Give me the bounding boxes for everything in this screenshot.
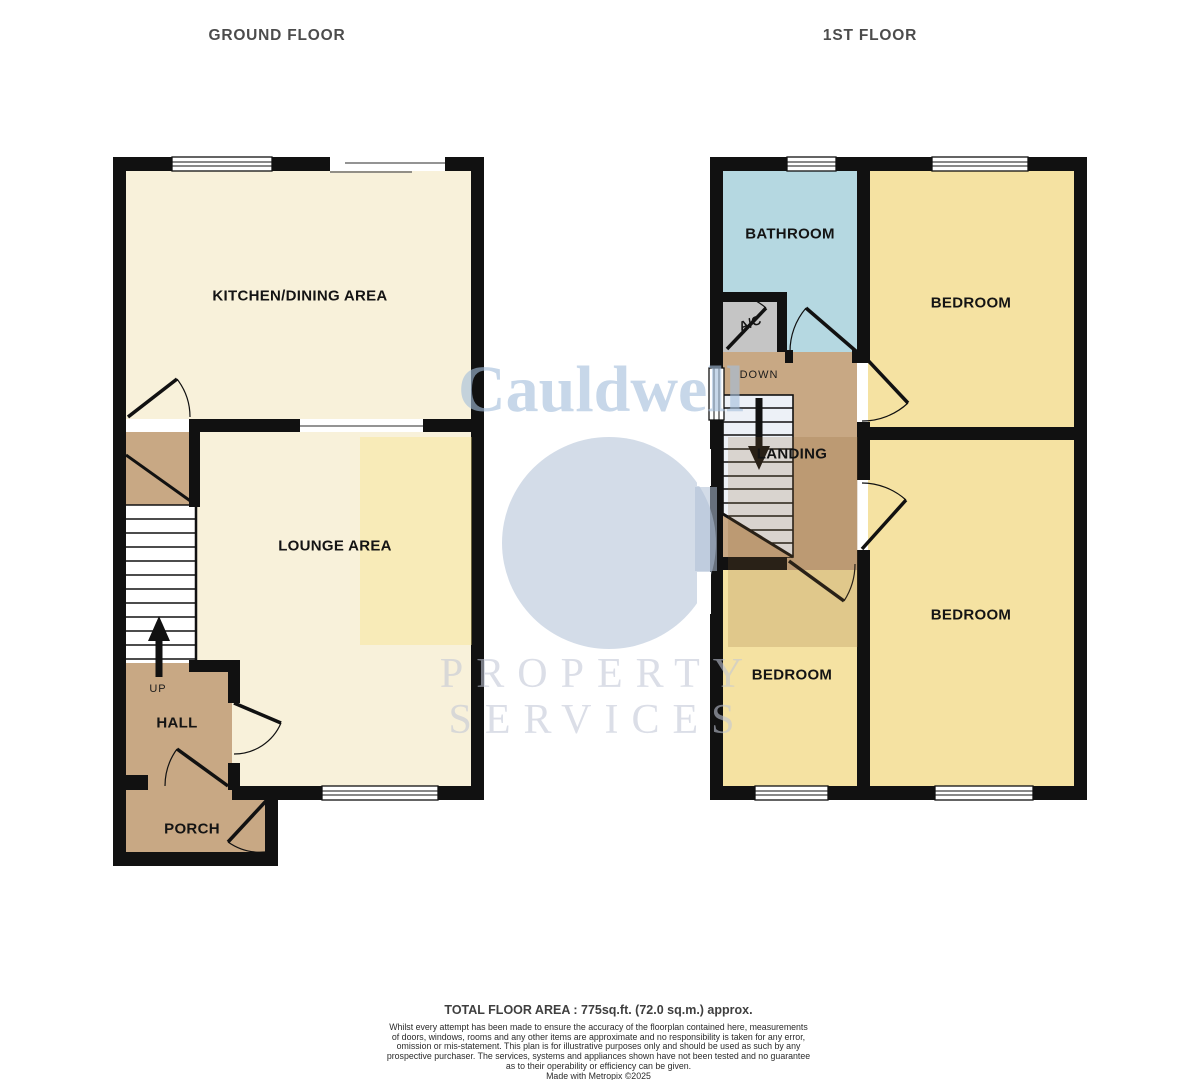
- floorplan-drawing: [0, 0, 1197, 1080]
- lounge-label: LOUNGE AREA: [278, 538, 392, 555]
- floorplan-page: Cauldwell PROPERTY SERVICES GROUND FLOOR…: [0, 0, 1197, 1080]
- total-floor-area: TOTAL FLOOR AREA : 775sq.ft. (72.0 sq.m.…: [0, 1003, 1197, 1017]
- bedroom-bottom-right-label: BEDROOM: [931, 607, 1011, 624]
- lounge-room-area: [196, 432, 471, 787]
- hall-label: HALL: [156, 715, 197, 732]
- up-label: UP: [149, 683, 166, 695]
- footer: TOTAL FLOOR AREA : 775sq.ft. (72.0 sq.m.…: [0, 1003, 1197, 1080]
- ground-floor-plan: [113, 157, 484, 866]
- ground-floor-title: GROUND FLOOR: [208, 27, 345, 45]
- stairs-down: [723, 395, 793, 557]
- metropix-credit: Made with Metropix ©2025: [0, 1072, 1197, 1080]
- down-label: DOWN: [740, 369, 779, 381]
- porch-label: PORCH: [164, 821, 220, 838]
- bathroom-label: BATHROOM: [745, 226, 835, 243]
- bedroom-bottom-left-label: BEDROOM: [752, 667, 832, 684]
- first-floor-title: 1ST FLOOR: [823, 27, 917, 45]
- first-floor-plan: [709, 157, 1087, 800]
- kitchen-dining-label: KITCHEN/DINING AREA: [212, 288, 387, 305]
- stair-winder-area: [126, 432, 196, 505]
- bedroom-top-label: BEDROOM: [931, 295, 1011, 312]
- landing-label: LANDING: [757, 446, 827, 463]
